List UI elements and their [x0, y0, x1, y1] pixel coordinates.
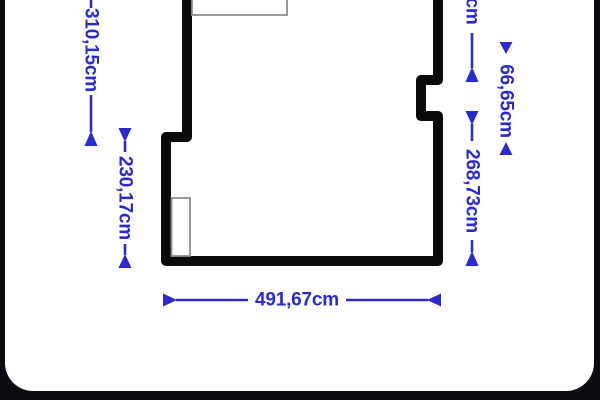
dimension-label: 491,67cm [255, 290, 339, 311]
dimension-right-top-wall: cm [462, 0, 483, 82]
dimension-label: 310,15cm [81, 8, 102, 92]
dimension-arrow-icon [466, 67, 479, 82]
door-marker-top [192, 0, 287, 15]
dimension-label: 66,65cm [496, 64, 517, 138]
dimension-arrow-icon [466, 251, 479, 266]
dimension-right-notch: 66,65cm [496, 42, 517, 155]
app-background: 310,15cm 230,17cm cm 66,65cm [0, 0, 600, 400]
dimension-label: 268,73cm [462, 149, 483, 233]
floor-plan-canvas: 310,15cm 230,17cm cm 66,65cm [0, 0, 600, 400]
dimension-label: 230,17cm [115, 156, 136, 240]
dimension-right-lower-wall: 268,73cm [462, 111, 483, 266]
dimension-left-outer-wall: 310,15cm [81, 0, 102, 146]
dimension-arrow-icon [466, 111, 479, 125]
wall-outline [166, 0, 438, 261]
dimension-arrow-icon [500, 142, 513, 155]
dimension-arrow-icon [500, 42, 513, 54]
dimension-bottom-wall: 491,67cm [163, 290, 441, 311]
dimension-arrow-icon [119, 128, 132, 142]
dimension-label: cm [462, 0, 483, 25]
dimension-arrow-icon [85, 131, 98, 146]
dimension-left-inner-wall: 230,17cm [115, 128, 136, 268]
dimension-arrow-icon [427, 294, 441, 307]
dimension-arrow-icon [163, 294, 177, 307]
door-marker-left [172, 198, 191, 256]
dimension-arrow-icon [119, 254, 132, 268]
